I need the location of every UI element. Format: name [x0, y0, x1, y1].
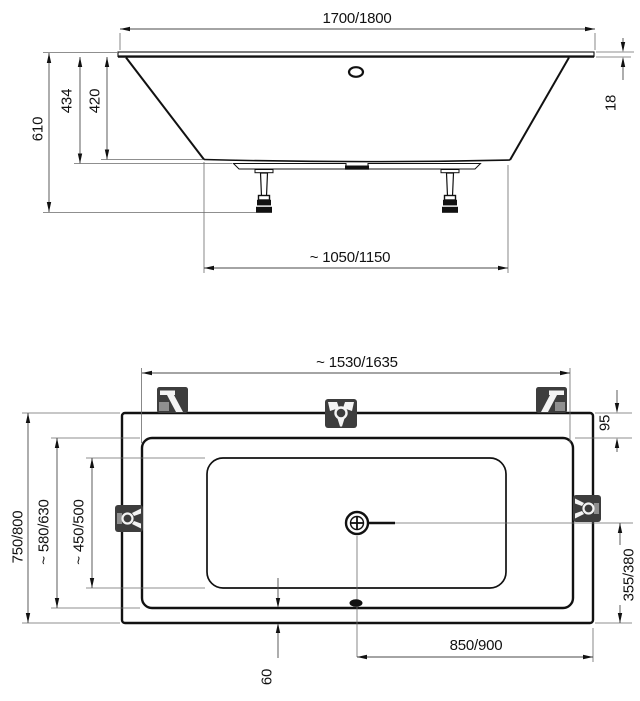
- support-leg-left: [255, 170, 273, 213]
- mounting-bracket-right-middle: [573, 495, 601, 522]
- plan-view: ~ 1530/1635 95 750/800: [9, 354, 637, 685]
- dim-label-355-380: 355/380: [620, 549, 637, 602]
- dim-height-to-shell: 420: [86, 57, 203, 160]
- mounting-bracket-top-middle: [325, 399, 357, 428]
- dim-label-overall-length: 1700/1800: [322, 10, 391, 27]
- dim-drain-offset-side: 355/380: [595, 523, 637, 623]
- dim-label-60: 60: [258, 669, 275, 685]
- waste-oval: [350, 599, 363, 607]
- dim-label-434: 434: [58, 89, 75, 113]
- dim-label-750-800: 750/800: [9, 511, 26, 564]
- dim-label-450-500: ~ 450/500: [70, 499, 87, 564]
- mounting-bracket-top-left: [157, 387, 188, 413]
- mounting-bracket-top-right: [536, 387, 567, 413]
- tub-shell: [126, 58, 569, 162]
- dim-overall-length: 1700/1800: [120, 10, 595, 50]
- dim-label-580-630: ~ 580/630: [35, 499, 52, 564]
- support-rail: [234, 164, 481, 170]
- dim-drain-offset-end: 850/900: [357, 628, 593, 662]
- tub-rim-profile: [118, 52, 594, 57]
- dim-support-base-length: ~ 1050/1150: [204, 162, 508, 273]
- side-view: 1700/1800 610 434 420: [29, 10, 634, 273]
- support-leg-right: [441, 170, 459, 213]
- bathtub-drawing: 1700/1800 610 434 420: [0, 0, 640, 701]
- dim-label-850-900: 850/900: [450, 637, 503, 654]
- dim-overall-height: 610: [29, 53, 256, 213]
- dim-label-1530-1635: ~ 1530/1635: [316, 354, 398, 371]
- dim-label-18: 18: [602, 95, 619, 111]
- dim-label-420: 420: [86, 89, 103, 113]
- mounting-bracket-left-middle: [115, 505, 143, 532]
- technical-drawing-canvas: 1700/1800 610 434 420: [0, 0, 640, 701]
- dim-label-95: 95: [596, 415, 613, 431]
- dim-label-1050-1150: ~ 1050/1150: [310, 249, 391, 266]
- dim-overall-width: 750/800: [9, 413, 120, 623]
- drain-gap-bar: [345, 166, 369, 170]
- dim-height-to-frame: 434: [58, 57, 232, 164]
- dim-rim-thickness: 18: [596, 38, 634, 111]
- dim-label-610: 610: [29, 117, 46, 141]
- overflow-oval: [349, 67, 363, 77]
